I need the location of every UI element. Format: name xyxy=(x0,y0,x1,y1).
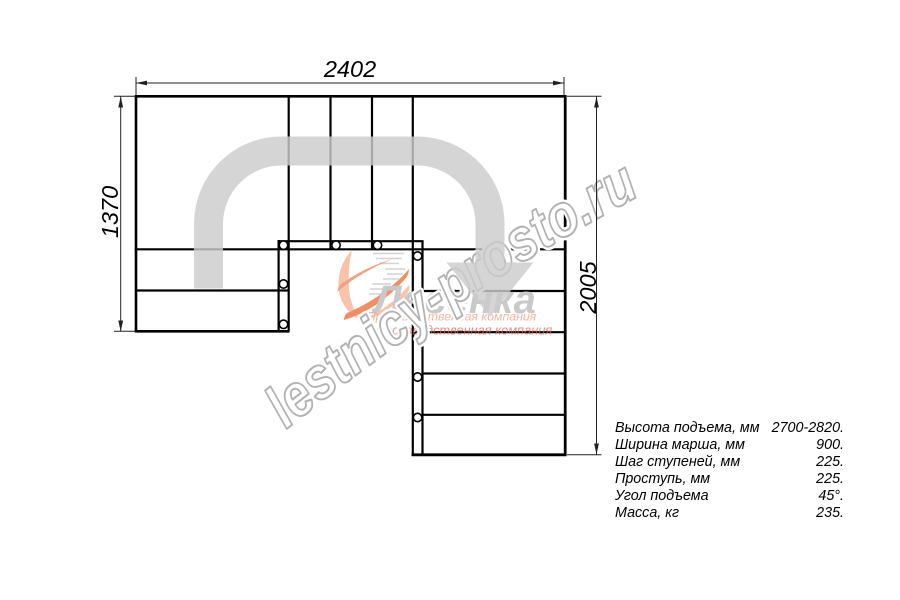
svg-text:235.: 235. xyxy=(815,505,844,521)
svg-text:Шаг ступеней, мм: Шаг ступеней, мм xyxy=(615,454,740,470)
svg-text:Высота подъема, мм: Высота подъема, мм xyxy=(615,420,760,436)
svg-text:Угол подъема: Угол подъема xyxy=(614,488,709,504)
svg-text:900.: 900. xyxy=(816,437,844,453)
svg-text:45°.: 45°. xyxy=(818,488,844,504)
svg-text:2005: 2005 xyxy=(575,260,601,314)
svg-text:Проступь, мм: Проступь, мм xyxy=(615,471,710,487)
svg-text:225.: 225. xyxy=(815,471,844,487)
svg-text:2402: 2402 xyxy=(323,56,376,82)
svg-text:Ширина марша, мм: Ширина марша, мм xyxy=(615,437,745,453)
svg-text:1370: 1370 xyxy=(97,186,123,238)
svg-text:Масса, кг: Масса, кг xyxy=(615,505,679,521)
svg-text:2700-2820.: 2700-2820. xyxy=(771,420,844,436)
svg-text:225.: 225. xyxy=(815,454,844,470)
